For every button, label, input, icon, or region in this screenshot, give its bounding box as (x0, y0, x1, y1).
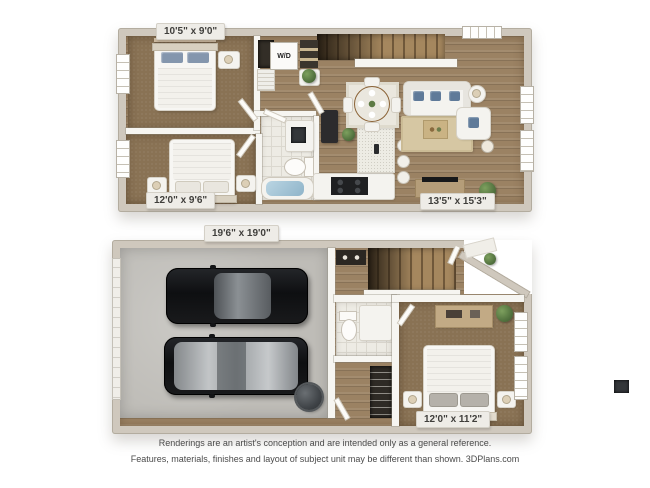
linen-closet (300, 40, 318, 68)
interior-wall (256, 134, 262, 204)
dining-chair (344, 98, 352, 112)
sink (291, 127, 306, 143)
interior-wall (126, 128, 260, 134)
island-faucet (374, 144, 379, 154)
plant (342, 128, 355, 141)
water-heater (296, 384, 322, 410)
bathtub-water (266, 181, 304, 196)
car-mirror (209, 394, 215, 398)
table-lamp (503, 396, 510, 403)
toilet (285, 159, 305, 175)
bed-pillow (204, 182, 228, 192)
window (514, 356, 528, 400)
throw-pillow (468, 117, 479, 128)
interior-wall (328, 248, 335, 418)
bed-pillow (461, 394, 488, 406)
bar-stool (398, 172, 409, 183)
interior-wall (392, 295, 399, 426)
washer-dryer-label: W/D (277, 53, 291, 60)
car-roof-glass (214, 273, 271, 319)
disclaimer-line2: Features, materials, finishes and layout… (0, 451, 650, 467)
nightstand (237, 176, 255, 191)
dimension-label-bedroom2: 12'0" x 9'6" (146, 192, 215, 209)
window (520, 130, 534, 172)
sofa-back (404, 82, 470, 90)
stairs (368, 248, 456, 292)
dimension-label-garage: 19'6" x 19'0" (204, 225, 279, 242)
entry-console (336, 250, 366, 265)
disclaimer: Renderings are an artist's conception an… (0, 435, 650, 467)
table-lamp (409, 396, 416, 403)
sofa-arm (404, 82, 411, 115)
garage-door (112, 258, 121, 400)
window (520, 86, 534, 124)
window (116, 54, 130, 94)
wardrobe-closet (370, 366, 392, 418)
louver-closet-door (258, 70, 274, 90)
car-mirror (209, 334, 215, 338)
dining-chair (365, 78, 379, 86)
dimension-label-living-room: 13'5" x 15'3" (420, 193, 495, 210)
plant (302, 69, 316, 83)
toilet-tank (340, 312, 356, 320)
half-wall (355, 59, 457, 67)
dimension-label-bedroom1: 10'5" x 9'0" (156, 23, 225, 40)
interior-wall (392, 295, 524, 302)
window (116, 140, 130, 178)
bed (155, 44, 215, 110)
car (166, 268, 308, 324)
bed-pillow (176, 182, 200, 192)
nightstand (404, 392, 421, 407)
interior-wall (334, 356, 396, 362)
table-lamp (153, 182, 160, 189)
dining-chair (365, 123, 379, 131)
throw-pillow (430, 91, 441, 101)
window (514, 312, 528, 352)
stairs (317, 34, 445, 60)
side-table (469, 86, 485, 102)
bathtub (262, 178, 313, 199)
bar-stool (398, 156, 409, 167)
refrigerator (321, 110, 338, 143)
floorplan-page: W/D (0, 0, 650, 488)
headboard (153, 44, 217, 50)
tv-screen (422, 177, 458, 182)
table-lamp (473, 90, 480, 97)
nightstand (219, 52, 239, 68)
window (462, 26, 502, 39)
dining-table (355, 87, 389, 121)
blanket (427, 349, 491, 394)
car-windshield (217, 342, 246, 390)
blanket (158, 68, 212, 108)
plant (484, 253, 496, 265)
throw-pillow (449, 91, 460, 101)
table-lamp (242, 180, 249, 187)
disclaimer-line1: Renderings are an artist's conception an… (0, 435, 650, 451)
upper-floor-plan: W/D (118, 28, 532, 212)
toilet (342, 320, 356, 340)
nightstand (148, 178, 166, 193)
dining-chair (392, 98, 400, 112)
blanket (173, 143, 231, 180)
table-lamp (225, 56, 232, 63)
bed-pillow (161, 52, 183, 63)
bed (424, 346, 494, 420)
sink (614, 380, 629, 393)
bed-pillow (187, 52, 209, 63)
bed-pillow (430, 394, 457, 406)
throw-pillow (413, 91, 424, 101)
washer-dryer-closet: W/D (270, 42, 298, 70)
nightstand (498, 392, 515, 407)
plant (496, 305, 513, 322)
lower-floor-plan (112, 240, 532, 434)
armchair (457, 108, 490, 139)
car (164, 337, 308, 395)
coffee-table (424, 121, 447, 138)
cooktop (331, 177, 368, 195)
dimension-label-lower-bedroom: 12'0" x 11'2" (416, 411, 490, 428)
toilet-tank (305, 158, 313, 176)
bathroom-vanity (360, 306, 391, 340)
floor-lamp (482, 141, 493, 152)
dresser (436, 306, 492, 327)
car-mirror (210, 265, 216, 269)
interior-wall (334, 295, 396, 302)
car-mirror (210, 323, 216, 327)
interior-wall (254, 111, 316, 116)
